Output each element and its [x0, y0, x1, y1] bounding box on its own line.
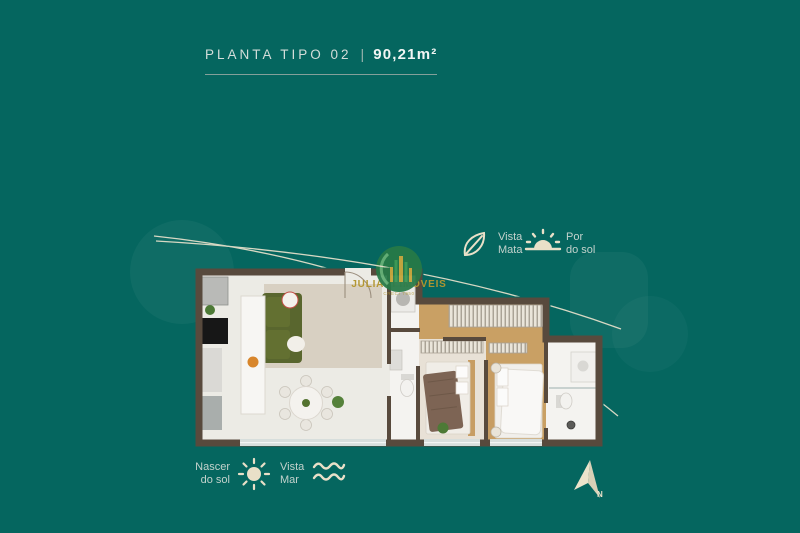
title-separator: |	[361, 46, 365, 62]
page-title: PLANTA TIPO 02 | 90,21m²	[205, 46, 437, 63]
por-do-sol-line1: Por	[566, 231, 595, 244]
waves-icon	[312, 459, 346, 485]
nascer-do-sol-line1: Nascer	[178, 461, 230, 474]
plan-type-label: PLANTA TIPO 02	[205, 47, 352, 62]
north-arrow-icon: N	[574, 460, 603, 499]
marketing-image: JULIANI IMÓVEIS CRECI 7950 N PLANTA TIPO…	[0, 0, 800, 533]
vista-mata-line2: Mata	[498, 244, 522, 257]
feature-vista-mata: Vista Mata	[498, 231, 522, 257]
leaf-icon	[456, 226, 494, 264]
title-underline	[205, 74, 437, 75]
sunset-icon	[522, 228, 564, 258]
vista-mar-line1: Vista	[280, 461, 304, 474]
feature-por-do-sol: Por do sol	[566, 231, 595, 257]
north-label: N	[597, 490, 603, 499]
nascer-do-sol-line2: do sol	[178, 474, 230, 487]
area-value: 90,21m²	[373, 46, 437, 63]
vista-mar-line2: Mar	[280, 474, 304, 487]
vista-mata-line1: Vista	[498, 231, 522, 244]
sweep-lines	[154, 236, 621, 416]
por-do-sol-line2: do sol	[566, 244, 595, 257]
sunrise-icon	[237, 455, 271, 493]
decorative-overlay: N	[0, 0, 800, 533]
feature-vista-mar: Vista Mar	[280, 461, 304, 487]
feature-nascer-do-sol: Nascer do sol	[178, 461, 230, 487]
